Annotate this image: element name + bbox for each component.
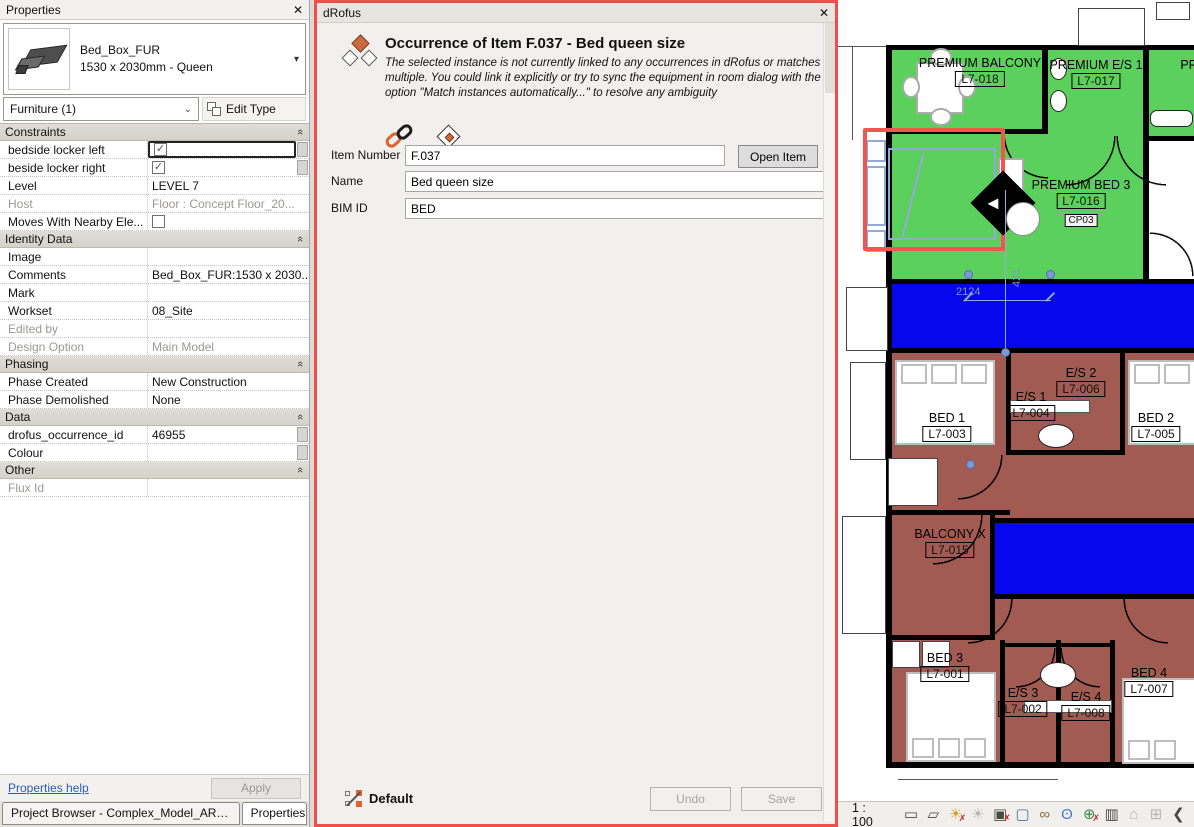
room-tag-e-s-1[interactable]: E/S 1L7-004: [1006, 390, 1055, 422]
wall: [886, 279, 1194, 284]
property-value[interactable]: [148, 444, 309, 461]
properties-titlebar[interactable]: Properties ✕: [0, 0, 309, 20]
property-value[interactable]: None: [148, 391, 309, 408]
exterior-balcony-outline: [1078, 8, 1145, 46]
error-badge: ✗: [959, 811, 967, 826]
room-number-tag[interactable]: L7-017: [1071, 73, 1120, 89]
closet-outline: [892, 641, 920, 668]
room-number-tag[interactable]: L7-008: [1061, 705, 1110, 721]
property-label: Flux Id: [0, 479, 148, 496]
wall: [886, 348, 1194, 353]
toilet-fixture: [1040, 662, 1076, 688]
close-icon[interactable]: ✕: [293, 3, 303, 17]
collapse-icon[interactable]: ❮: [1171, 807, 1186, 822]
property-row-host: HostFloor : Concept Floor_20...: [0, 195, 309, 213]
crop-view-icon[interactable]: ▣✗: [992, 807, 1007, 822]
room-name: BED 3: [920, 651, 969, 665]
save-button[interactable]: Save: [741, 787, 822, 811]
room-code-tag[interactable]: CP03: [1064, 214, 1097, 227]
error-badge: ✗: [1092, 811, 1100, 826]
dialog-scrollbar[interactable]: [823, 23, 835, 821]
property-value[interactable]: ✓: [148, 159, 309, 176]
room-tag-pr[interactable]: PR: [1180, 58, 1194, 72]
worksharing-display-icon[interactable]: ⊕✗: [1082, 807, 1097, 822]
room-name: E/S 2: [1056, 366, 1105, 380]
property-row-level: LevelLEVEL 7: [0, 177, 309, 195]
selection-grip[interactable]: [966, 460, 975, 469]
drofus-titlebar[interactable]: dRofus ✕: [317, 3, 835, 23]
door-arc: [958, 455, 1003, 500]
property-value[interactable]: Floor : Concept Floor_20...: [148, 195, 309, 212]
property-value[interactable]: [148, 213, 309, 230]
room-tag-premium-bed-3[interactable]: PREMIUM BED 3L7-016CP03: [1032, 178, 1131, 228]
property-value[interactable]: [148, 479, 309, 496]
property-row-phase-created: Phase CreatedNew Construction: [0, 373, 309, 391]
room-name: BED 1: [922, 411, 971, 425]
room-name: PR: [1180, 58, 1194, 72]
drofus-dialog: dRofus ✕ Occurrence of Item F.037 - Bed …: [314, 0, 838, 827]
selection-grip[interactable]: [1046, 270, 1055, 279]
wall-line: [852, 46, 853, 140]
door-arc: [968, 599, 1013, 644]
default-layout-label: Default: [369, 791, 413, 806]
room-name: E/S 3: [998, 686, 1047, 700]
close-icon[interactable]: ✕: [819, 6, 829, 20]
section-header-data[interactable]: Data«: [0, 409, 309, 426]
show-crop-region-icon[interactable]: ▢: [1015, 807, 1030, 822]
section-header-phasing[interactable]: Phasing«: [0, 356, 309, 373]
section-header-identity-data[interactable]: Identity Data«: [0, 231, 309, 248]
property-value[interactable]: LEVEL 7: [148, 177, 309, 194]
room-tag-e-s-2[interactable]: E/S 2L7-006: [1056, 366, 1105, 398]
property-value[interactable]: ✓: [148, 141, 296, 158]
property-label: drofus_occurrence_id: [0, 426, 148, 443]
drofus-title: dRofus: [323, 6, 361, 20]
selection-grip[interactable]: [1001, 348, 1010, 357]
error-badge: ✗: [1003, 811, 1011, 826]
view-control-bar: 1 : 100 ▭▱☀✗☀▣✗▢∞ʘ⊕✗▥⌂⊞❮: [838, 801, 1194, 827]
room-name: BALCONY X: [914, 527, 985, 541]
room-name: PREMIUM BALCONY: [919, 56, 1041, 70]
room-name: BED 4: [1124, 666, 1173, 680]
property-grid: Constraints«bedside locker left✓beside l…: [0, 123, 309, 497]
property-value[interactable]: 46955: [148, 426, 309, 443]
door-arc: [1123, 599, 1168, 644]
associate-parameter-button[interactable]: [297, 142, 308, 157]
room-number-tag[interactable]: L7-003: [922, 426, 971, 442]
room-number-tag[interactable]: L7-016: [1056, 193, 1105, 209]
item-number-input[interactable]: [405, 145, 725, 166]
property-label: beside locker right: [0, 159, 148, 176]
room-tag-bed-3[interactable]: BED 3L7-001: [920, 651, 969, 683]
room-tag-balcony-x[interactable]: BALCONY XL7-015: [914, 527, 985, 559]
dimension-value: 2124: [956, 286, 980, 298]
checkbox[interactable]: ✓: [154, 143, 167, 156]
exterior-balcony-outline: [846, 287, 888, 351]
displaced-elements-icon[interactable]: ▥: [1104, 807, 1119, 822]
section-title: Phasing: [5, 357, 48, 371]
property-row-flux-id: Flux Id: [0, 479, 309, 497]
open-item-button[interactable]: Open Item: [738, 145, 818, 168]
corridor-blue-2: [990, 523, 1194, 594]
property-row-image: Image: [0, 248, 309, 266]
property-label: Colour: [0, 444, 148, 461]
property-label: bedside locker left: [0, 141, 148, 158]
room-name: PREMIUM E/S 1: [1049, 58, 1142, 72]
visual-style-icon[interactable]: ▱: [926, 807, 941, 822]
analytical-model-icon[interactable]: ⌂: [1126, 807, 1141, 822]
property-row-comments: CommentsBed_Box_FUR:1530 x 2030...: [0, 266, 309, 284]
checkbox[interactable]: ✓: [152, 161, 165, 174]
property-row-bedside-locker-left: bedside locker left✓: [0, 141, 309, 159]
wall: [1120, 353, 1125, 455]
floor-plan-view[interactable]: ◄ 2124 421 PREMIUM BALCONYL7-018PREMIUM …: [838, 0, 1194, 827]
property-value[interactable]: Main Model: [148, 338, 309, 355]
door-arc: [1150, 232, 1194, 276]
section-header-other[interactable]: Other«: [0, 462, 309, 479]
section-title: Identity Data: [5, 232, 72, 246]
view-scale[interactable]: 1 : 100: [852, 801, 886, 827]
property-row-drofus-occurrence-id: drofus_occurrence_id46955: [0, 426, 309, 444]
room-name: E/S 1: [1006, 390, 1055, 404]
collapse-section-icon[interactable]: «: [294, 361, 306, 367]
name-input[interactable]: [405, 171, 825, 192]
bottom-tabs: Project Browser - Complex_Model_ARCH_Wi.…: [0, 801, 309, 827]
family-thumbnail: [8, 28, 70, 90]
occurrence-description: The selected instance is not currently l…: [385, 56, 837, 101]
name-label: Name: [331, 174, 363, 188]
room-tag-e-s-4[interactable]: E/S 4L7-008: [1061, 690, 1110, 722]
property-row-design-option: Design OptionMain Model: [0, 338, 309, 356]
property-row-phase-demolished: Phase DemolishedNone: [0, 391, 309, 409]
room-tag-premium-e-s-1[interactable]: PREMIUM E/S 1L7-017: [1049, 58, 1142, 90]
exterior-balcony-outline: [850, 362, 886, 460]
collapse-section-icon[interactable]: «: [294, 236, 306, 242]
occurrence-heading: Occurrence of Item F.037 - Bed queen siz…: [385, 35, 685, 52]
collapse-section-icon[interactable]: «: [294, 414, 306, 420]
tab-properties[interactable]: Properties: [242, 802, 307, 825]
toilet-fixture: [1050, 90, 1067, 112]
room-number-tag[interactable]: L7-005: [1131, 426, 1180, 442]
property-value[interactable]: [148, 248, 309, 265]
property-label: Comments: [0, 266, 148, 283]
chevron-down-icon: ⌄: [184, 104, 192, 115]
room-number-tag[interactable]: L7-007: [1124, 681, 1173, 697]
property-label: Image: [0, 248, 148, 265]
property-value[interactable]: New Construction: [148, 373, 309, 390]
wall-line: [898, 779, 1058, 780]
sun-path-icon[interactable]: ☀✗: [948, 807, 963, 822]
toilet-fixture: [1038, 424, 1074, 448]
wall-line: [838, 46, 886, 47]
property-row-workset: Workset08_Site: [0, 302, 309, 320]
room-tag-bed-1[interactable]: BED 1L7-003: [922, 411, 971, 443]
property-label: Moves With Nearby Ele...: [0, 213, 148, 230]
category-filter-combo[interactable]: Furniture (1) ⌄: [3, 97, 199, 121]
dimension-line: [1005, 190, 1006, 354]
property-value[interactable]: [148, 320, 309, 337]
property-value[interactable]: [148, 284, 309, 301]
room-name: E/S 4: [1061, 690, 1110, 704]
exterior-outline: [1156, 2, 1190, 20]
room-tag-e-s-3[interactable]: E/S 3L7-002: [998, 686, 1047, 718]
property-row-mark: Mark: [0, 284, 309, 302]
temporary-view-properties-icon[interactable]: ʘ: [1059, 807, 1074, 822]
category-filter-label: Furniture (1): [10, 102, 76, 116]
section-title: Other: [5, 463, 35, 477]
section-header-constraints[interactable]: Constraints«: [0, 124, 309, 141]
section-title: Data: [5, 410, 30, 424]
room-number-tag[interactable]: L7-006: [1056, 381, 1105, 397]
default-layout-icon[interactable]: [345, 790, 362, 807]
drofus-logo-icon: [343, 37, 379, 71]
property-row-colour: Colour: [0, 444, 309, 462]
room-tag-premium-balcony[interactable]: PREMIUM BALCONYL7-018: [919, 56, 1041, 88]
dimension-line: [966, 300, 1051, 301]
constraints-icon[interactable]: ⊞: [1148, 807, 1163, 822]
corridor-blue-1: [891, 284, 1194, 353]
room-tag-bed-2[interactable]: BED 2L7-005: [1131, 411, 1180, 443]
collapse-section-icon[interactable]: «: [294, 467, 306, 473]
property-value[interactable]: Bed_Box_FUR:1530 x 2030...: [148, 266, 309, 283]
edit-type-button[interactable]: Edit Type: [202, 97, 306, 121]
wardrobe-furniture: [888, 458, 938, 506]
property-label: Design Option: [0, 338, 148, 355]
properties-panel: Properties ✕ Bed_Box_FUR 1530 x 2030mm -…: [0, 0, 310, 827]
wall: [1000, 643, 1115, 647]
property-label: Workset: [0, 302, 148, 319]
associate-parameter-button[interactable]: [297, 160, 308, 175]
associate-parameter-button[interactable]: [297, 427, 308, 442]
chair-furniture: [902, 76, 920, 98]
property-label: Phase Created: [0, 373, 148, 390]
associate-parameter-button[interactable]: [297, 445, 308, 460]
apply-button[interactable]: Apply: [211, 778, 301, 799]
collapse-section-icon[interactable]: «: [294, 129, 306, 135]
section-title: Constraints: [5, 125, 66, 139]
wall: [1006, 450, 1125, 455]
chair-furniture: [930, 108, 952, 126]
properties-empty-area: [0, 497, 309, 774]
edit-type-label: Edit Type: [226, 102, 276, 116]
reveal-hidden-elements-icon[interactable]: ∞: [1037, 807, 1052, 822]
shadows-icon[interactable]: ☀: [970, 807, 985, 822]
property-label: Mark: [0, 284, 148, 301]
bathtub-fixture: [1150, 110, 1193, 127]
room-name: PREMIUM BED 3: [1032, 178, 1131, 192]
room-number-tag[interactable]: L7-004: [1006, 405, 1055, 421]
type-name: 1530 x 2030mm - Queen: [80, 59, 213, 76]
bed-thumbnail-icon: [17, 43, 63, 77]
property-label: Phase Demolished: [0, 391, 148, 408]
property-label: Edited by: [0, 320, 148, 337]
exterior-balcony-outline: [842, 516, 886, 634]
properties-title: Properties: [6, 3, 61, 17]
property-row-moves-with-nearby-ele: Moves With Nearby Ele...: [0, 213, 309, 231]
edit-type-icon: [207, 102, 221, 116]
undo-button[interactable]: Undo: [650, 787, 731, 811]
room-tag-bed-4[interactable]: BED 4L7-007: [1124, 666, 1173, 698]
wall: [1042, 45, 1048, 131]
wall: [990, 518, 1194, 523]
item-number-label: Item Number: [331, 148, 400, 162]
properties-help-link[interactable]: Properties help: [8, 781, 89, 795]
detail-level-icon[interactable]: ▭: [903, 807, 918, 822]
property-label: Host: [0, 195, 148, 212]
property-row-beside-locker-right: beside locker right✓: [0, 159, 309, 177]
selection-grip[interactable]: [964, 270, 973, 279]
bim-id-input[interactable]: [405, 198, 825, 219]
room-number-tag[interactable]: L7-002: [998, 701, 1047, 717]
room-number-tag[interactable]: L7-015: [925, 542, 974, 558]
tab-project-browser[interactable]: Project Browser - Complex_Model_ARCH_Wi.…: [2, 802, 240, 825]
property-label: Level: [0, 177, 148, 194]
dimension-value-vertical: 421: [1011, 269, 1023, 287]
room-number-tag[interactable]: L7-018: [955, 71, 1004, 87]
chevron-down-icon[interactable]: ▾: [294, 54, 299, 65]
property-row-edited-by: Edited by: [0, 320, 309, 338]
type-selector[interactable]: Bed_Box_FUR 1530 x 2030mm - Queen ▾: [3, 23, 306, 95]
room-number-tag[interactable]: L7-001: [920, 666, 969, 682]
property-value[interactable]: 08_Site: [148, 302, 309, 319]
room-name: BED 2: [1131, 411, 1180, 425]
bed-furniture: [906, 672, 996, 762]
checkbox[interactable]: [152, 215, 165, 228]
family-name: Bed_Box_FUR: [80, 42, 213, 59]
bim-id-label: BIM ID: [331, 201, 368, 215]
